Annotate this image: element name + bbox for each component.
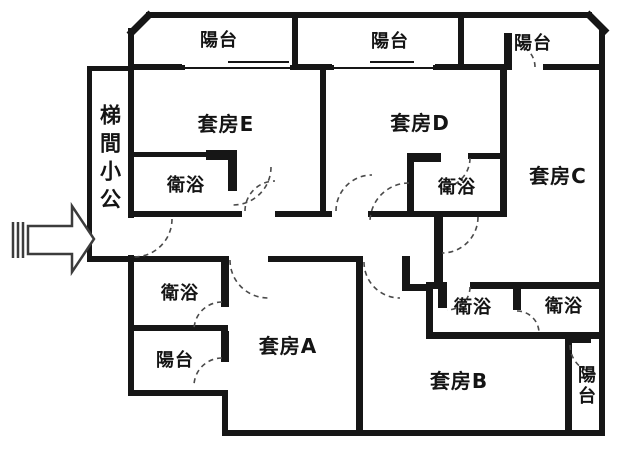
bath-d-label: 衛浴: [438, 179, 476, 197]
bath-c-label: 衛浴: [545, 298, 583, 316]
suite-c-label: 套房C: [529, 166, 587, 186]
bath-a-label: 衛浴: [161, 285, 199, 303]
balcony-top-middle-label: 陽台: [371, 33, 409, 51]
floor-plan-drawing: [0, 0, 640, 460]
walls-layer: [87, 12, 605, 436]
stairwell-common-area-label: 梯間小公: [99, 104, 120, 216]
entrance-arrow-icon: [13, 206, 94, 272]
suite-b-label: 套房B: [430, 371, 488, 391]
suite-d-label: 套房D: [390, 113, 450, 133]
suite-a-label: 套房A: [259, 336, 317, 356]
floor-plan: 陽台 陽台 陽台 套房E 套房D 套房C 套房A 套房B 衛浴 衛浴 衛浴 衛浴…: [0, 0, 640, 460]
balcony-top-right-label: 陽台: [514, 35, 552, 53]
suite-e-label: 套房E: [198, 114, 255, 134]
bath-b-label: 衛浴: [454, 299, 492, 317]
balcony-top-left-label: 陽台: [200, 32, 238, 50]
balcony-a-label: 陽台: [156, 352, 194, 370]
bath-e-label: 衛浴: [167, 177, 205, 195]
balcony-b-label: 陽台: [576, 365, 594, 407]
